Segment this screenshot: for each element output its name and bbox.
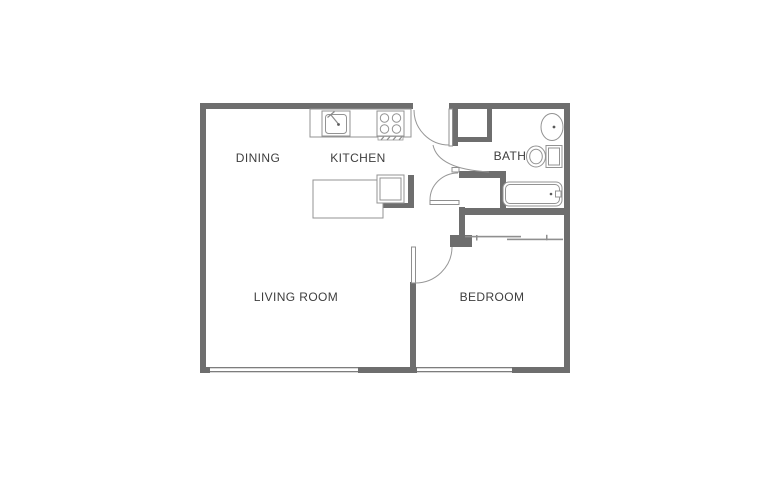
- window-line: [417, 367, 512, 368]
- window-line: [210, 367, 358, 368]
- closet-slider-tick: [476, 235, 478, 241]
- stove-outline: [377, 111, 404, 136]
- wall-top-right: [449, 103, 570, 109]
- wall-bottom-a: [200, 367, 210, 373]
- kitchen-island: [313, 175, 404, 218]
- wall-kitchen-peninsula-v: [408, 175, 414, 208]
- bathtub: [503, 182, 562, 206]
- hall-door: [430, 173, 459, 205]
- island-outline: [313, 180, 383, 218]
- hall-door-leaf: [430, 201, 459, 205]
- label-kitchen: KITCHEN: [330, 151, 385, 165]
- entry-door-arc: [414, 110, 449, 145]
- toilet: [527, 146, 563, 168]
- kitchen-sink: [322, 111, 350, 136]
- burner-icon: [380, 125, 388, 133]
- label-bath: BATH: [494, 149, 527, 163]
- wall-bottom-b: [358, 367, 417, 373]
- kitchen-appliance-inner: [380, 178, 401, 200]
- closet-slider-tick: [546, 235, 548, 241]
- toilet-bowl-inner: [530, 149, 543, 164]
- living-room-window: [210, 367, 358, 372]
- entry-door-leaf: [449, 109, 453, 146]
- bath-sink-drain-dot: [553, 126, 556, 129]
- tub-faucet: [556, 191, 562, 197]
- wall-bath-door-stub: [459, 171, 506, 178]
- wall-bottom-c: [512, 367, 570, 373]
- bedroom-door-leaf: [412, 247, 416, 283]
- wall-living-bedroom-divider: [410, 282, 416, 367]
- floor-plan-canvas: DINING KITCHEN BATH LIVING ROOM BEDROOM: [0, 0, 768, 480]
- closet-wall-right: [487, 109, 492, 142]
- burner-icon: [392, 125, 400, 133]
- wall-bath-bottom: [459, 208, 570, 215]
- floor-plan: DINING KITCHEN BATH LIVING ROOM BEDROOM: [0, 0, 768, 480]
- bath-door-arc: [433, 145, 489, 172]
- burner-icon: [392, 114, 400, 122]
- bedroom-window: [417, 367, 512, 372]
- bath-sink-bowl: [541, 114, 563, 141]
- wall-top-left: [200, 103, 413, 109]
- bedroom-sliding-closet: [465, 235, 563, 241]
- wall-right: [564, 103, 570, 373]
- window-line: [417, 371, 512, 372]
- bedroom-door: [412, 247, 453, 283]
- hall-door-arc: [430, 173, 458, 200]
- stove: [377, 111, 404, 140]
- bath-door: [433, 145, 489, 172]
- sink-drain-dot: [337, 123, 340, 126]
- closet-wall-bottom: [453, 137, 492, 142]
- label-living-room: LIVING ROOM: [254, 290, 338, 304]
- sink-basin: [326, 115, 347, 134]
- closet-slider-panel: [507, 239, 563, 241]
- tub-drain-dot: [550, 193, 553, 196]
- burner-icon: [380, 114, 388, 122]
- label-dining: DINING: [236, 151, 280, 165]
- closet-slider-panel: [465, 236, 521, 238]
- outer-walls: [200, 103, 570, 373]
- bath-pedestal-sink: [541, 114, 563, 141]
- entry-closet: [453, 109, 492, 146]
- bedroom-door-arc: [415, 247, 452, 283]
- bath-door-jamb: [452, 168, 459, 173]
- window-line: [210, 371, 358, 372]
- wall-left: [200, 103, 206, 373]
- label-bedroom: BEDROOM: [460, 290, 525, 304]
- entry-door: [414, 109, 453, 146]
- toilet-tank-inner: [549, 148, 560, 165]
